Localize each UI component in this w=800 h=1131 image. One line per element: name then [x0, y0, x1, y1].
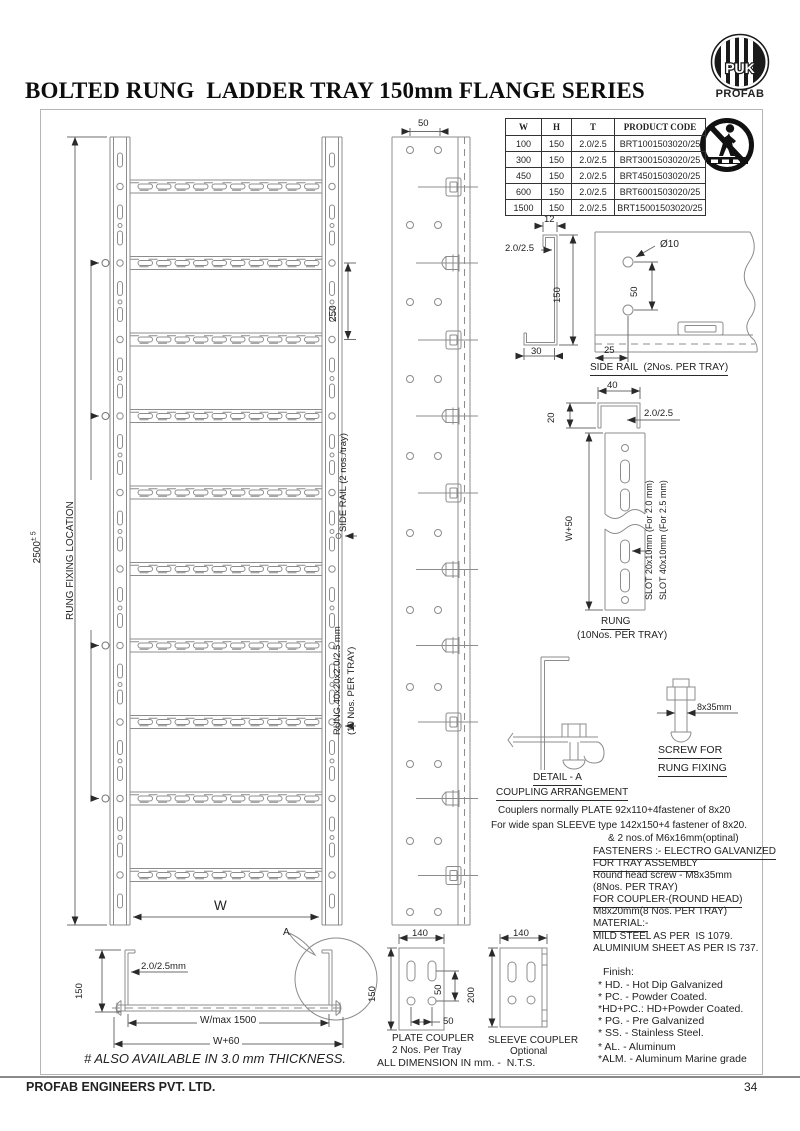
- col-header-h: H: [542, 119, 572, 136]
- logo-brand-label: PROFAB: [704, 88, 776, 100]
- cell: 150: [542, 184, 572, 200]
- col-header-product-code: PRODUCT CODE: [615, 119, 706, 136]
- dim-span: W/max 1500: [197, 1014, 259, 1027]
- plate-coupler-quantity: 2 Nos. Per Tray: [392, 1044, 461, 1057]
- detail-ref-a: A: [283, 926, 290, 939]
- dim-section-thickness: 2.0/2.5mm: [141, 960, 186, 973]
- dim-edge-25: 25: [604, 344, 615, 357]
- page-title: BOLTED RUNG LADDER TRAY 150mm FLANGE SER…: [25, 78, 645, 104]
- dim-strip-hole-pitch: 50: [418, 117, 429, 130]
- footer-company: PROFAB ENGINEERS PVT. LTD.: [26, 1080, 215, 1094]
- sleeve-coupler-height: 200: [465, 987, 478, 1003]
- cell: BRT1001503020/25: [615, 136, 706, 152]
- dim-hole-dia: Ø10: [660, 238, 679, 251]
- rung-fixing-label: RUNG FIXING LOCATION: [64, 501, 77, 620]
- footer-rule: [0, 1076, 800, 1078]
- table-row: 300 150 2.0/2.5 BRT3001503020/25: [506, 152, 706, 168]
- logo-monogram: PUK: [725, 60, 755, 76]
- dim-thickness: 2.0/2.5: [505, 242, 534, 255]
- table-row: 600 150 2.0/2.5 BRT6001503020/25: [506, 184, 706, 200]
- detail-a-caption: DETAIL - A: [533, 771, 582, 786]
- cell: BRT15001503020/25: [615, 200, 706, 216]
- col-header-w: W: [506, 119, 542, 136]
- sleeve-coupler-width: 140: [513, 927, 529, 940]
- note-coupler-3: & 2 nos.of M6x16mm(optinal): [608, 832, 739, 845]
- screw-caption-2: RUNG FIXING: [658, 762, 727, 777]
- cell: 2.0/2.5: [572, 200, 615, 216]
- dim-rung-length: W+50: [563, 516, 576, 541]
- dim-rung-thickness: 2.0/2.5: [644, 407, 673, 420]
- material-line-2: ALUMINIUM SHEET AS PER IS 737.: [593, 942, 758, 955]
- dim-rung-spacing: 250: [327, 305, 340, 322]
- plate-coupler-width: 140: [412, 927, 428, 940]
- rung-callout-line1: RUNG.40x20x2.0/2.5 mm: [331, 626, 344, 735]
- table-row: 450 150 2.0/2.5 BRT4501503020/25: [506, 168, 706, 184]
- dim-tolerance: ± 5: [31, 531, 38, 541]
- cell: 2.0/2.5: [572, 136, 615, 152]
- coupling-arrangement-title: COUPLING ARRANGEMENT: [496, 786, 628, 801]
- note-coupler-2: For wide span SLEEVE type 142x150+4 fast…: [491, 819, 747, 832]
- slot-small-label: SLOT 20x10mm (For 2.0 mm): [643, 480, 656, 600]
- dim-bottom-flange-30: 30: [531, 345, 542, 358]
- cell: 150: [542, 136, 572, 152]
- note-coupler-1: Couplers normally PLATE 92x110+4fastener…: [498, 804, 730, 817]
- finish-item: * SS. - Stainless Steel.: [598, 1027, 704, 1040]
- screw-size: 8x35mm: [697, 701, 732, 714]
- cell: 2.0/2.5: [572, 152, 615, 168]
- dimension-note: ALL DIMENSION IN mm. - N.T.S.: [377, 1057, 535, 1070]
- cell: 100: [506, 136, 542, 152]
- product-table: W H T PRODUCT CODE 100 150 2.0/2.5 BRT10…: [505, 118, 706, 216]
- cell: 450: [506, 168, 542, 184]
- col-header-t: T: [572, 119, 615, 136]
- cell: 600: [506, 184, 542, 200]
- side-rail-callout: SIDE RAIL (2 nos./tray): [337, 433, 350, 532]
- cell: 1500: [506, 200, 542, 216]
- cell: BRT4501503020/25: [615, 168, 706, 184]
- cell: 300: [506, 152, 542, 168]
- rung-callout-line2: (10 Nos. PER TRAY): [345, 647, 358, 735]
- cell: 150: [542, 168, 572, 184]
- plate-coupler-height: 150: [366, 986, 379, 1002]
- footer-page-number: 34: [744, 1080, 757, 1094]
- dim-overall-length: 2500± 5: [28, 531, 44, 563]
- table-header-row: W H T PRODUCT CODE: [506, 119, 706, 136]
- dim-flange-12: 12: [544, 213, 555, 226]
- catalog-page: PUK BOLTED RUNG LADDER TRAY 150mm FLANGE…: [0, 0, 800, 1131]
- dim-height-150: 150: [551, 287, 564, 303]
- finish-item: *ALM. - Aluminum Marine grade: [598, 1053, 747, 1066]
- dim-width-w: W: [211, 899, 230, 912]
- dim-hole-pitch-50: 50: [628, 286, 641, 297]
- dim-rung-depth-20: 20: [545, 412, 558, 423]
- rung-quantity: (10Nos. PER TRAY): [577, 629, 667, 642]
- dim-rung-width-40: 40: [607, 379, 618, 392]
- finish-heading: Finish:: [603, 966, 634, 979]
- plate-coupler-pitch-v: 50: [432, 984, 445, 995]
- dim-overall-width: W+60: [210, 1035, 242, 1048]
- cell: BRT3001503020/25: [615, 152, 706, 168]
- plate-coupler-pitch-h: 50: [443, 1015, 454, 1028]
- cell: 2.0/2.5: [572, 168, 615, 184]
- screw-caption-1: SCREW FOR: [658, 744, 722, 759]
- rung-caption: RUNG: [601, 615, 630, 630]
- cell: BRT6001503020/25: [615, 184, 706, 200]
- table-row: 100 150 2.0/2.5 BRT1001503020/25: [506, 136, 706, 152]
- thickness-note: # ALSO AVAILABLE IN 3.0 mm THICKNESS.: [84, 1052, 346, 1065]
- dim-section-height: 150: [73, 983, 86, 999]
- side-rail-caption: SIDE RAIL (2Nos. PER TRAY): [590, 361, 728, 376]
- puk-logo: PUK: [712, 35, 769, 90]
- cell: 2.0/2.5: [572, 184, 615, 200]
- table-row: 1500 150 2.0/2.5 BRT15001503020/25: [506, 200, 706, 216]
- slot-large-label: SLOT 40x10mm (For 2.5 mm): [657, 480, 670, 600]
- cell: 150: [542, 152, 572, 168]
